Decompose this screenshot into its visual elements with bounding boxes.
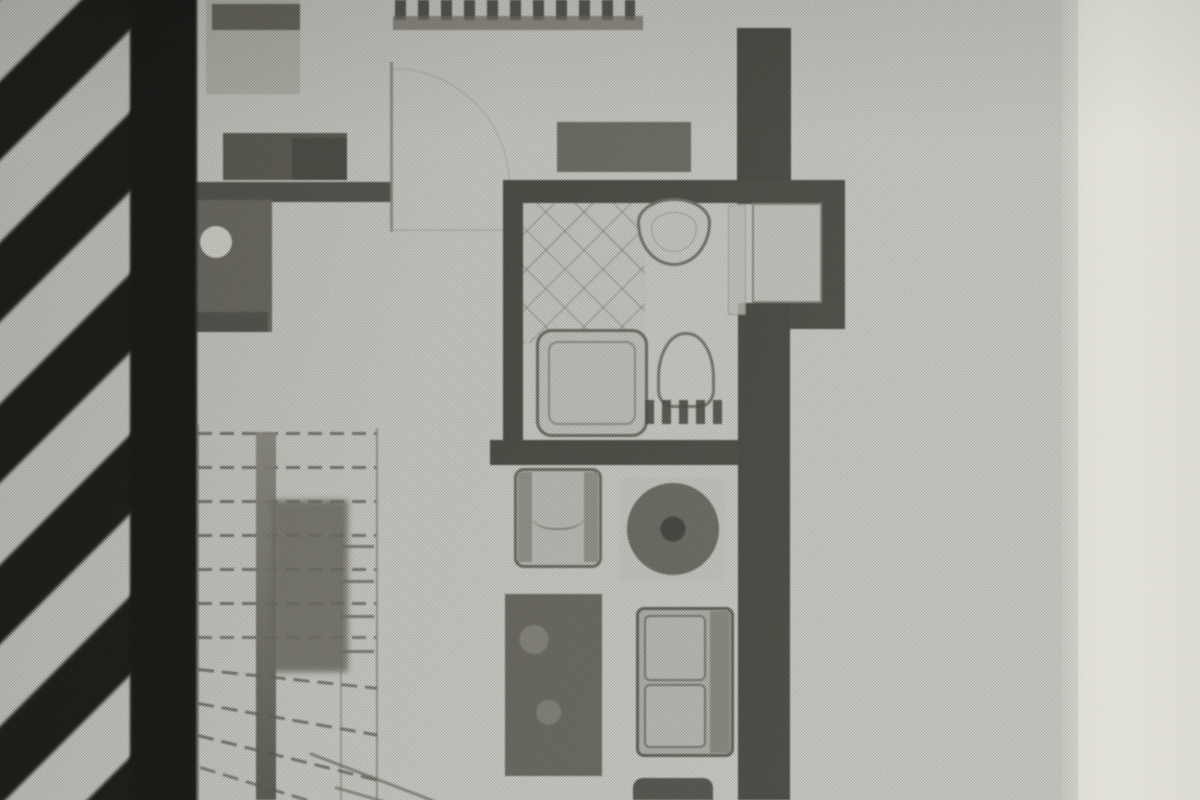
upper-cabinet-dark-band <box>212 4 300 30</box>
sofa-back <box>710 611 730 753</box>
chimney-block <box>737 28 791 204</box>
main-vertical-wall <box>738 303 790 800</box>
kitchen-wall-band <box>196 182 392 202</box>
partial-furniture-bottom <box>633 778 713 800</box>
winder-tread <box>198 702 378 737</box>
armchair-seat-curve <box>531 500 585 530</box>
stair-tread <box>198 432 376 435</box>
winder-tread <box>200 766 379 800</box>
top-wall-underband <box>393 16 643 30</box>
stair-tread <box>198 466 376 469</box>
winder-tread-long <box>335 786 557 800</box>
shower-stall <box>752 203 822 303</box>
stair-rail-right <box>376 428 378 800</box>
sofa-cushion-2 <box>644 684 706 748</box>
round-table <box>627 483 719 575</box>
stair-rail-left <box>197 424 199 800</box>
armchair-left-arm <box>518 472 532 562</box>
black-vertical-bar <box>130 0 197 800</box>
bed-block <box>505 594 602 776</box>
kitchen-counter-dark-end <box>292 138 347 180</box>
bath-radiator <box>645 400 723 424</box>
diamond-tile-floor <box>523 203 645 343</box>
threshold-line <box>392 229 504 231</box>
bath-wall-bottom <box>490 440 742 465</box>
sink-circle <box>200 226 232 258</box>
side-counter-dark-end <box>196 312 268 332</box>
pedestal-basin <box>657 332 715 408</box>
sofa-cushion-1 <box>644 615 706 681</box>
shower-tray-inner <box>548 341 636 425</box>
stair-dark-blob <box>272 500 348 672</box>
armchair-right-arm <box>584 472 598 562</box>
bath-door-leaf <box>728 205 746 315</box>
bath-wall-left <box>503 180 523 462</box>
sideboard <box>557 122 691 172</box>
bath-wall-right-upper <box>820 180 845 320</box>
floor-plan-photo <box>0 0 1200 800</box>
